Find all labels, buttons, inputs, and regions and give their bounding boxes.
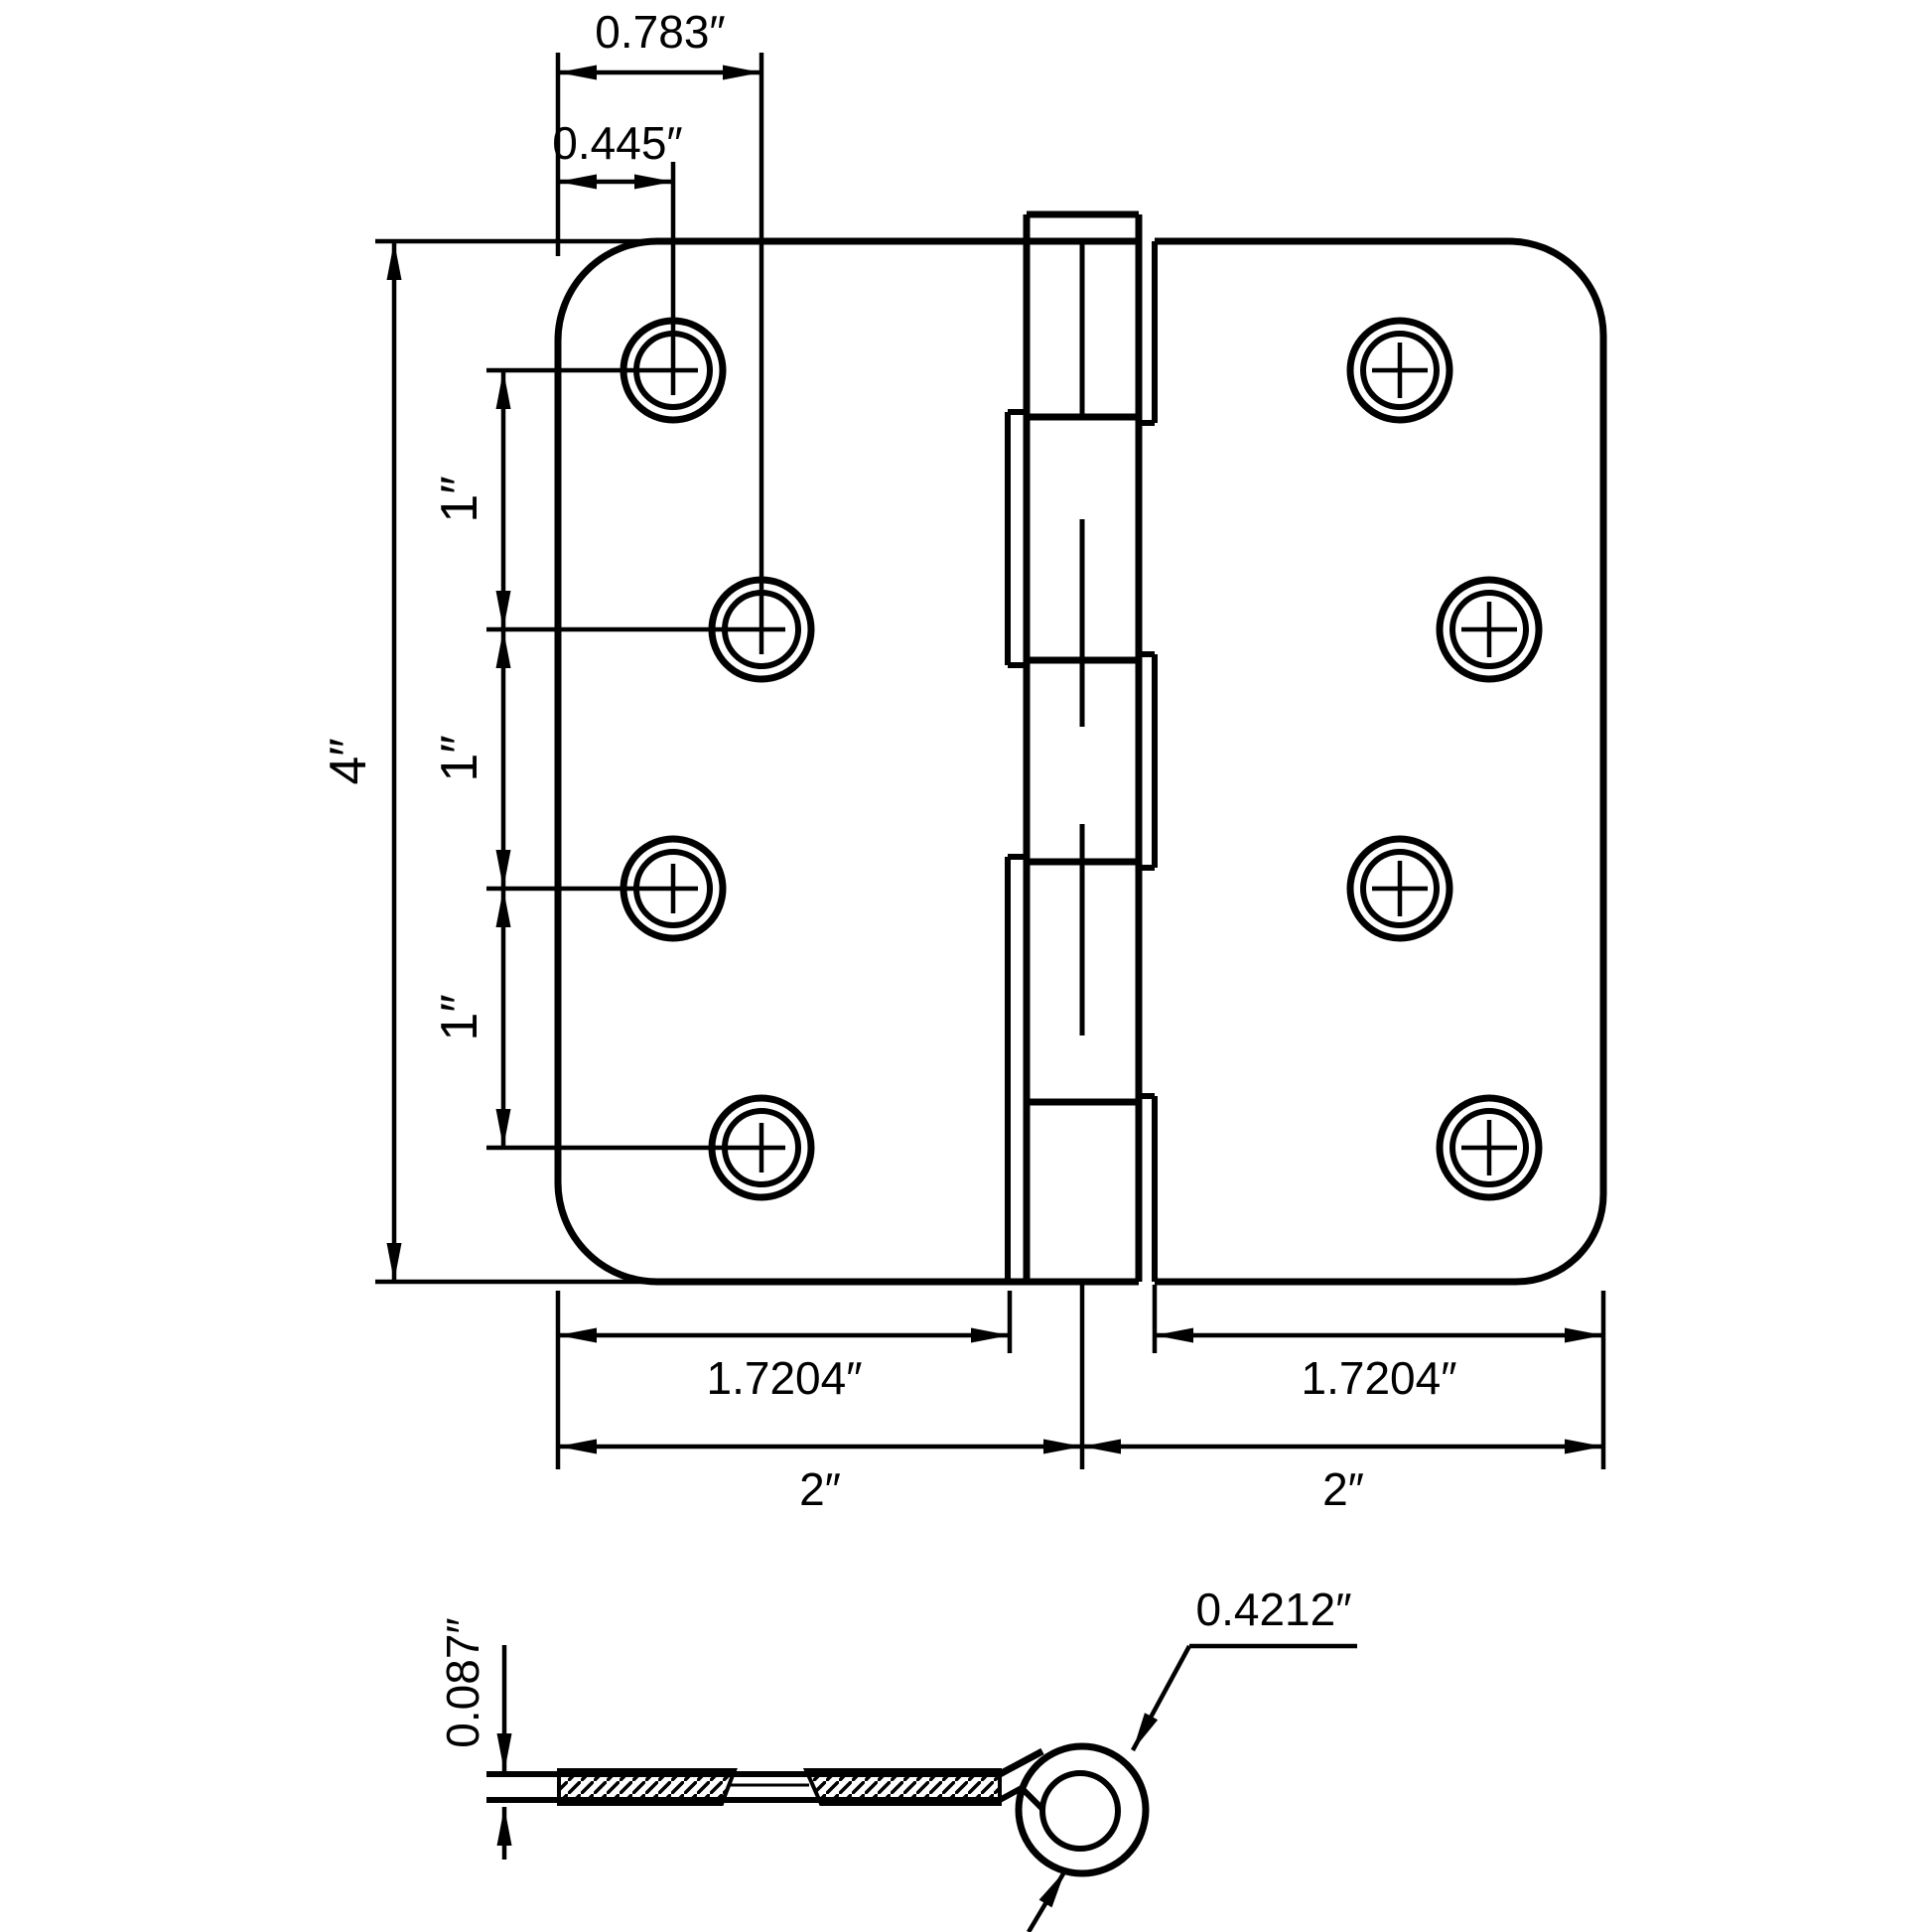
hinge-technical-drawing: 0.783″ 0.445″ 4″ 1″ 1″ 1″ xyxy=(0,0,1932,1932)
dim-label-half-width-left: 2″ xyxy=(799,1463,841,1515)
dim-label-hole-column-near: 0.445″ xyxy=(552,117,682,169)
curl-end-notch xyxy=(1022,1788,1042,1809)
screw-holes-right-leaf xyxy=(1350,321,1539,1197)
screw-hole xyxy=(1350,839,1449,938)
dimension-0445: 0.445″ xyxy=(552,117,682,395)
hinge-barrel xyxy=(1008,214,1155,1282)
dim-label-hole-column-far: 0.783″ xyxy=(595,6,725,58)
dimension-hole-pitch-chain: 1″ 1″ 1″ xyxy=(431,370,785,1148)
dim-label-hole-pitch-3: 1″ xyxy=(431,994,488,1040)
dim-label-leaf-width-right: 1.7204″ xyxy=(1302,1352,1457,1404)
dimension-knuckle-diameter: 0.4212″ xyxy=(1133,1584,1357,1750)
leaf-cross-section xyxy=(486,1770,1000,1804)
dim-label-leaf-width-left: 1.7204″ xyxy=(707,1352,863,1404)
dimension-thickness: 0.087″ xyxy=(437,1617,504,1860)
dimension-height: 4″ xyxy=(320,241,394,1282)
leader-arrow xyxy=(1029,1870,1065,1932)
screw-holes-left-leaf xyxy=(623,321,811,1197)
dim-label-half-width-right: 2″ xyxy=(1322,1463,1364,1515)
leader-arrow xyxy=(1133,1646,1189,1750)
dimension-bottom-widths: 1.7204″ 1.7204″ 2″ 2″ xyxy=(558,1285,1603,1515)
curl-outer-circle xyxy=(1019,1746,1146,1873)
knuckle-curl xyxy=(1000,1746,1146,1873)
screw-hole xyxy=(1440,1098,1539,1197)
dim-label-hole-pitch-1: 1″ xyxy=(431,476,488,522)
dim-label-knuckle-diameter: 0.4212″ xyxy=(1196,1584,1352,1635)
section-view: 0.087″ 0.4212″ xyxy=(437,1584,1357,1932)
drawing-canvas: 0.783″ 0.445″ 4″ 1″ 1″ 1″ xyxy=(0,0,1932,1932)
bottom-leader xyxy=(1029,1870,1065,1932)
curl-inner-circle xyxy=(1042,1773,1118,1849)
dim-label-thickness: 0.087″ xyxy=(437,1617,488,1747)
dim-label-overall-height: 4″ xyxy=(320,738,377,784)
dimension-0783: 0.783″ xyxy=(558,6,761,654)
screw-hole xyxy=(1350,321,1449,420)
screw-hole xyxy=(1440,580,1539,679)
dim-label-hole-pitch-2: 1″ xyxy=(431,735,488,781)
front-view: 0.783″ 0.445″ 4″ 1″ 1″ 1″ xyxy=(320,6,1603,1515)
